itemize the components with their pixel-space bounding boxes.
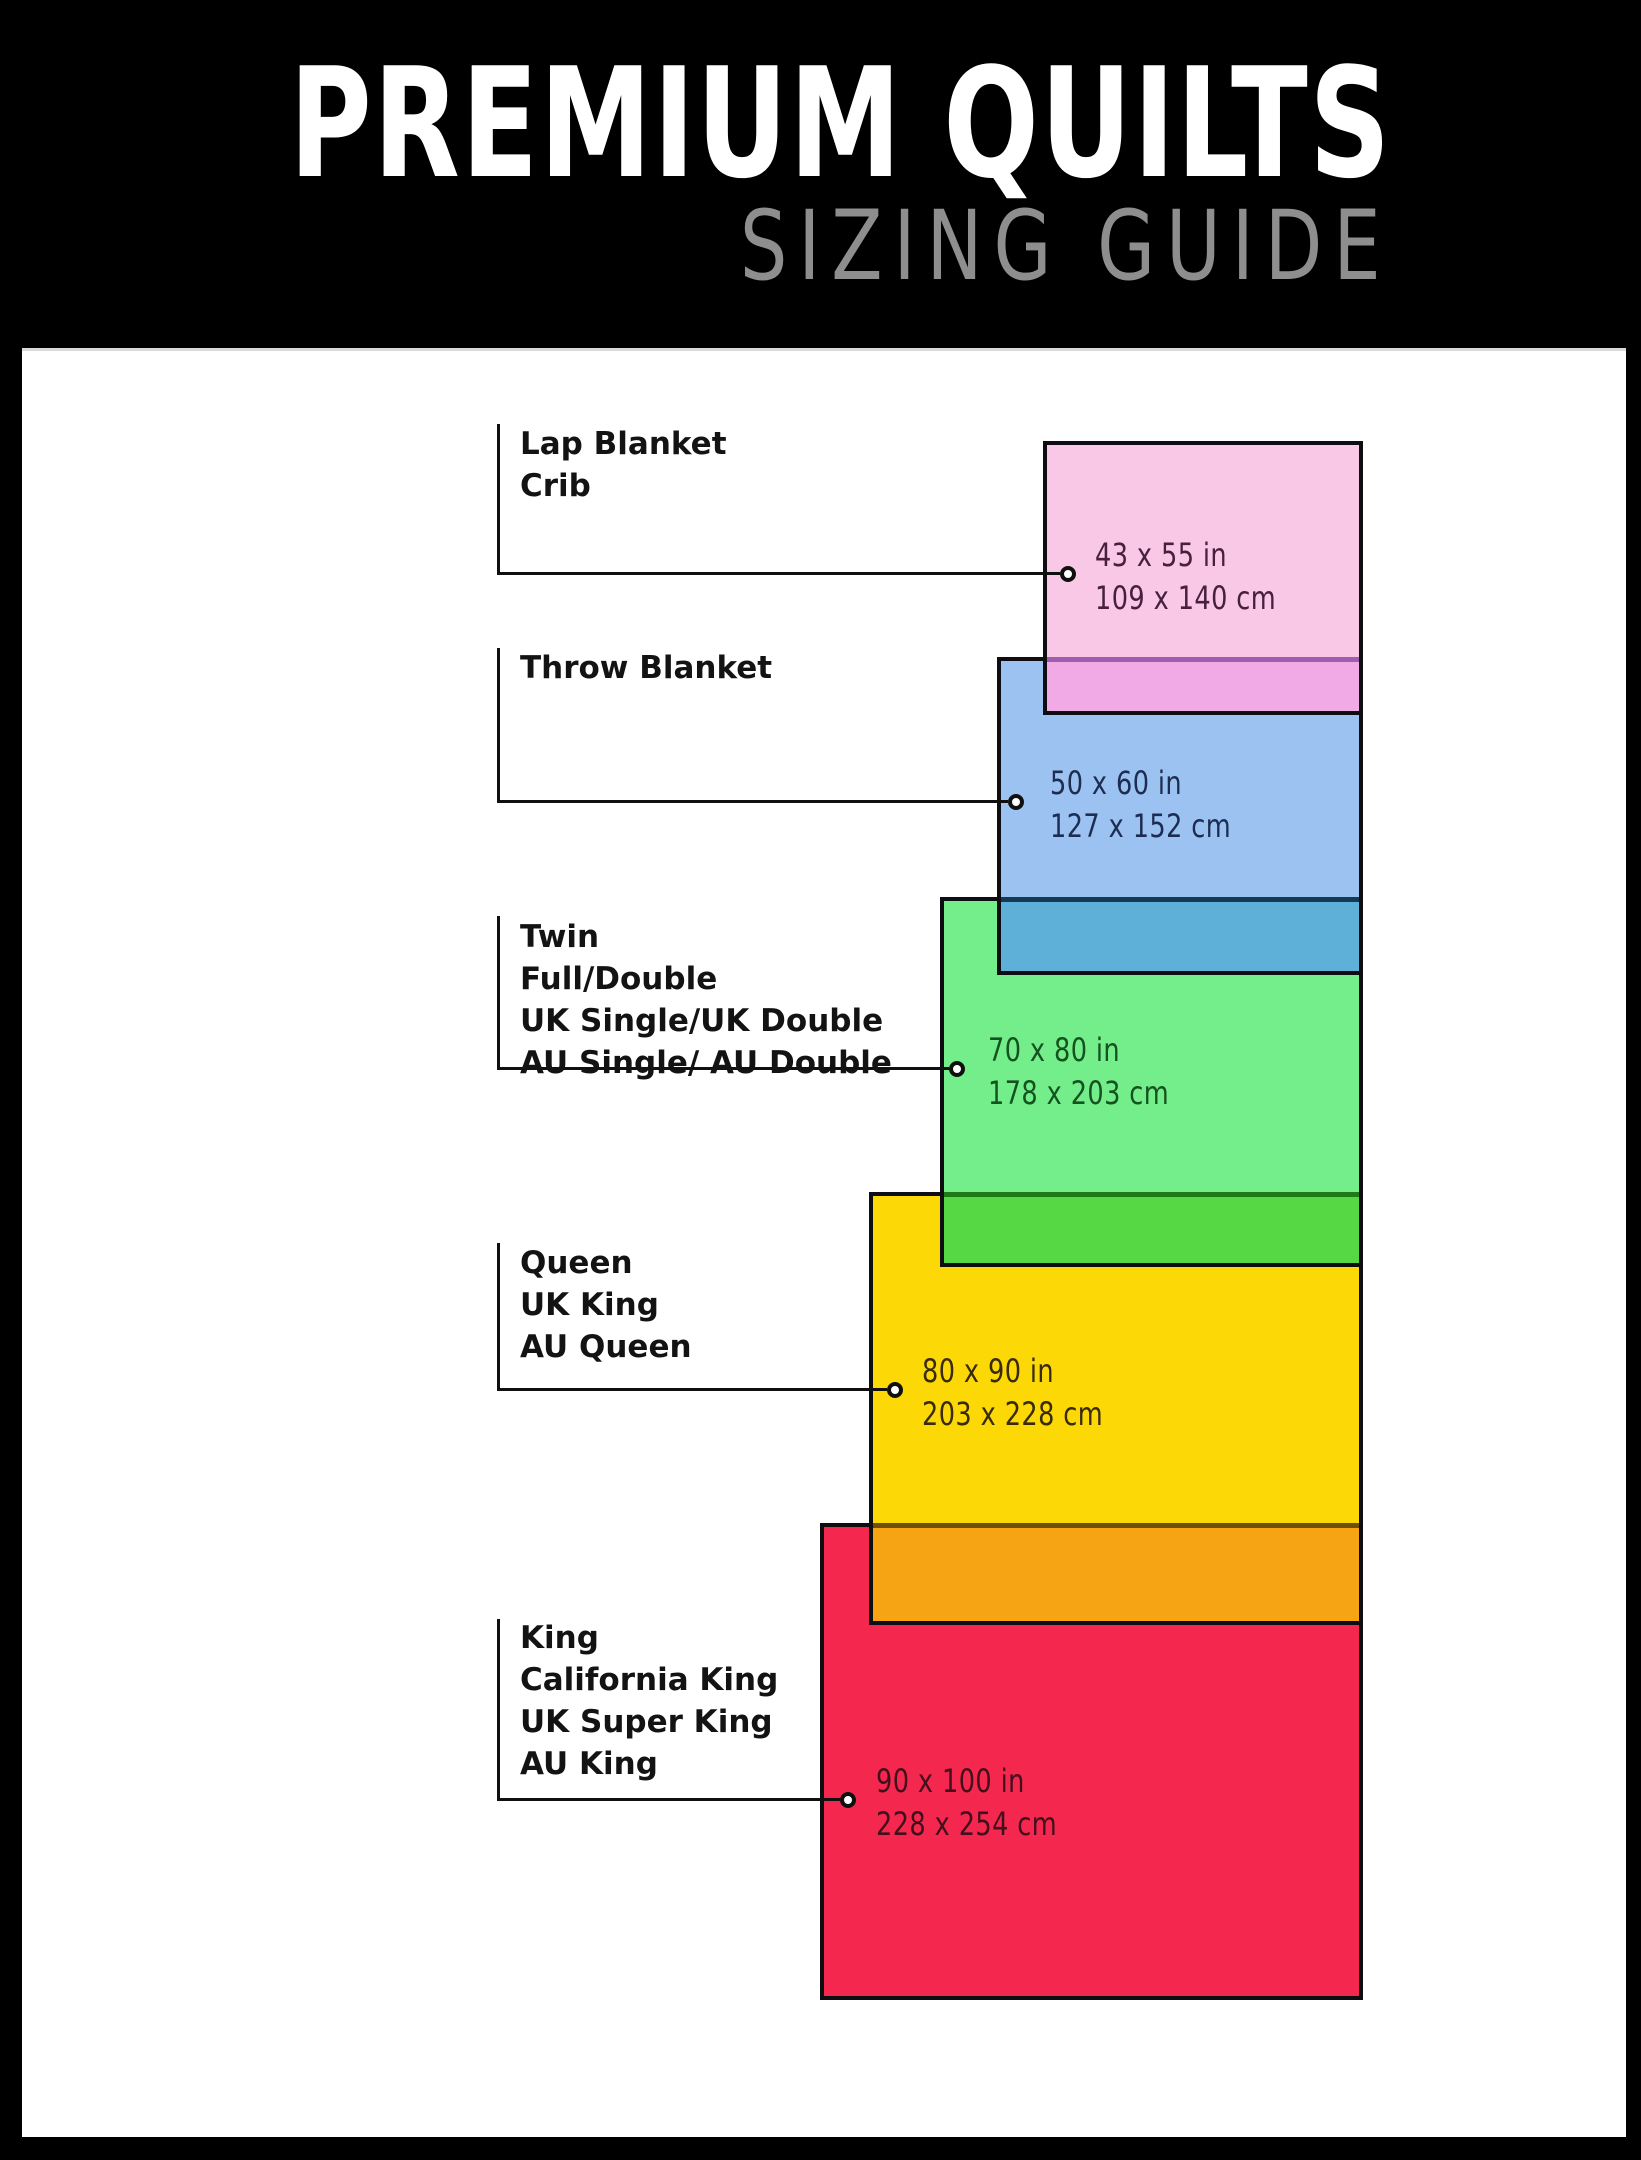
label-line: UK Super King — [520, 1701, 778, 1743]
label-line: AU Queen — [520, 1326, 692, 1368]
size-label-king: King California King UK Super King AU Ki… — [520, 1617, 778, 1785]
dimensions-cm: 178 x 203 cm — [988, 1072, 1169, 1115]
label-line: King — [520, 1617, 778, 1659]
marker-dot-twin — [949, 1061, 965, 1077]
connector-vertical-king — [497, 1619, 500, 1798]
label-line: Full/Double — [520, 958, 892, 1000]
label-line: AU King — [520, 1743, 778, 1785]
dimensions-cm: 109 x 140 cm — [1095, 577, 1276, 620]
overlap-band-queen-king — [873, 1523, 1359, 1621]
dimensions-inches: 90 x 100 in — [876, 1760, 1057, 1803]
label-line: AU Single/ AU Double — [520, 1042, 892, 1084]
dimensions-inches: 43 x 55 in — [1095, 534, 1276, 577]
label-line: UK Single/UK Double — [520, 1000, 892, 1042]
dimensions-king: 90 x 100 in 228 x 254 cm — [876, 1760, 1057, 1846]
size-label-queen: Queen UK King AU Queen — [520, 1242, 692, 1368]
connector-horizontal-lap-crib — [497, 572, 1060, 575]
dimensions-inches: 80 x 90 in — [922, 1350, 1103, 1393]
infographic-page: PREMIUM QUILTS SIZING GUIDE Lap Blanket … — [0, 0, 1641, 2160]
size-label-throw: Throw Blanket — [520, 647, 772, 689]
connector-horizontal-throw — [497, 800, 1008, 803]
label-line: Queen — [520, 1242, 692, 1284]
size-label-twin: Twin Full/Double UK Single/UK Double AU … — [520, 916, 892, 1084]
header: PREMIUM QUILTS SIZING GUIDE — [0, 0, 1641, 348]
connector-vertical-queen — [497, 1243, 500, 1388]
label-line: Lap Blanket — [520, 423, 727, 465]
size-label-lap-crib: Lap Blanket Crib — [520, 423, 727, 507]
connector-horizontal-queen — [497, 1388, 887, 1391]
connector-vertical-lap-crib — [497, 424, 500, 572]
connector-vertical-throw — [497, 648, 500, 800]
label-line: Twin — [520, 916, 892, 958]
dimensions-lap-crib: 43 x 55 in 109 x 140 cm — [1095, 534, 1276, 620]
label-line: Throw Blanket — [520, 647, 772, 689]
connector-vertical-twin — [497, 916, 500, 1067]
marker-dot-king — [840, 1792, 856, 1808]
label-line: California King — [520, 1659, 778, 1701]
connector-horizontal-king — [497, 1798, 840, 1801]
overlap-band-throw-twin — [1001, 897, 1359, 971]
dimensions-cm: 228 x 254 cm — [876, 1803, 1057, 1846]
page-title: PREMIUM QUILTS — [290, 48, 1392, 200]
label-line: Crib — [520, 465, 727, 507]
overlap-band-lap-throw — [1047, 657, 1359, 711]
dimensions-throw: 50 x 60 in 127 x 152 cm — [1050, 762, 1231, 848]
label-line: UK King — [520, 1284, 692, 1326]
dimensions-inches: 50 x 60 in — [1050, 762, 1231, 805]
dimensions-cm: 127 x 152 cm — [1050, 805, 1231, 848]
page-subtitle: SIZING GUIDE — [740, 198, 1392, 294]
dimensions-twin: 70 x 80 in 178 x 203 cm — [988, 1029, 1169, 1115]
marker-dot-throw — [1008, 794, 1024, 810]
dimensions-queen: 80 x 90 in 203 x 228 cm — [922, 1350, 1103, 1436]
dimensions-cm: 203 x 228 cm — [922, 1393, 1103, 1436]
dimensions-inches: 70 x 80 in — [988, 1029, 1169, 1072]
marker-dot-lap-crib — [1060, 566, 1076, 582]
marker-dot-queen — [887, 1382, 903, 1398]
overlap-band-twin-queen — [944, 1192, 1359, 1263]
